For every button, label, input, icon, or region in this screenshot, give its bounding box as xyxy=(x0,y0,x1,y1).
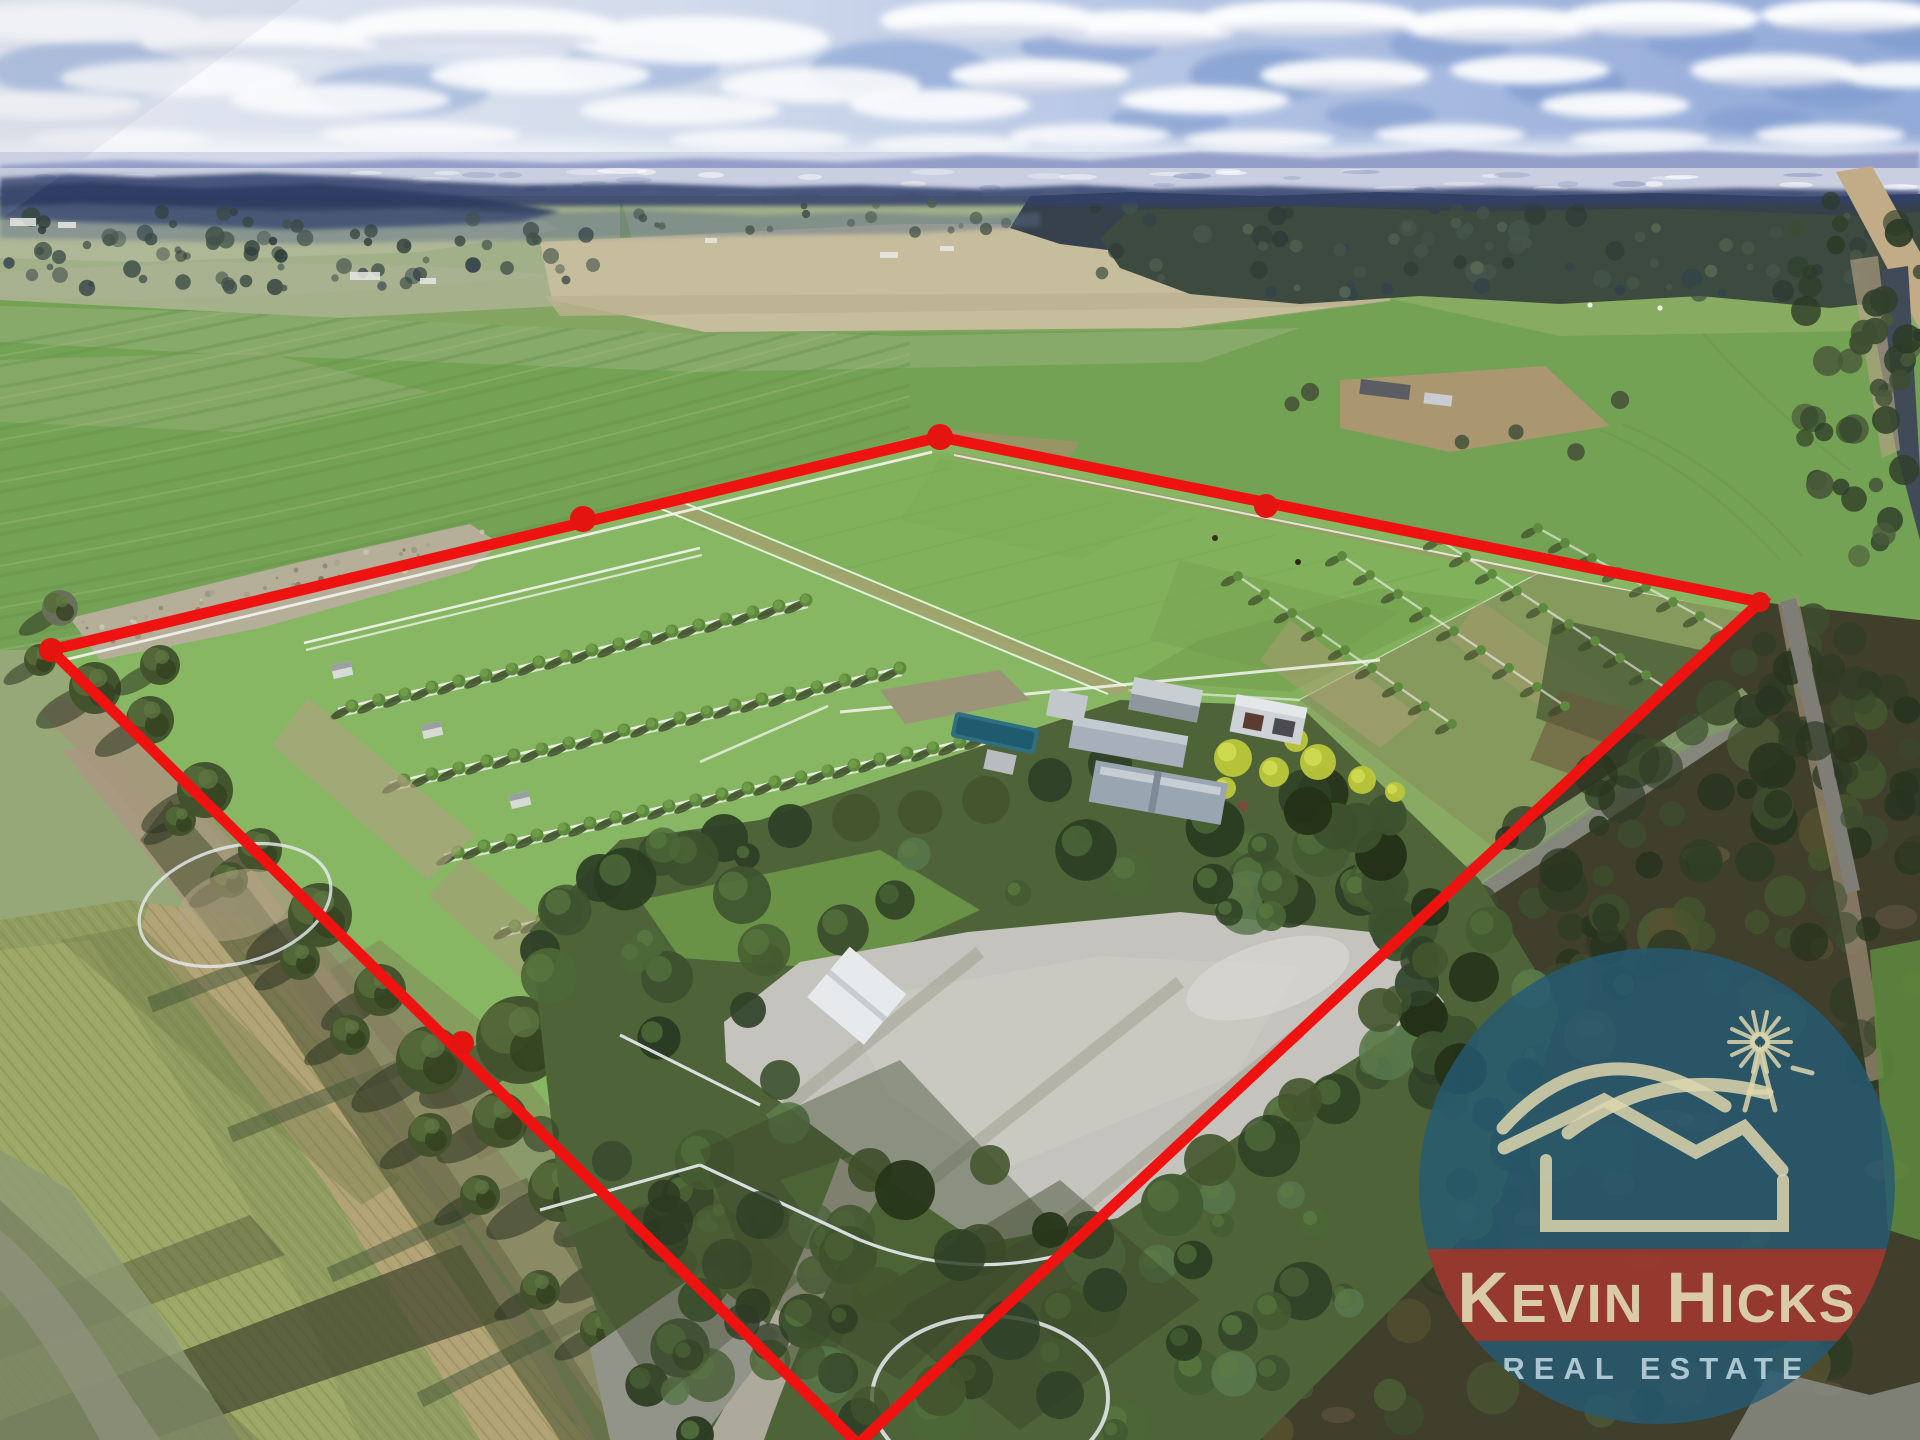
svg-text:REAL ESTATE: REAL ESTATE xyxy=(1502,1351,1811,1386)
